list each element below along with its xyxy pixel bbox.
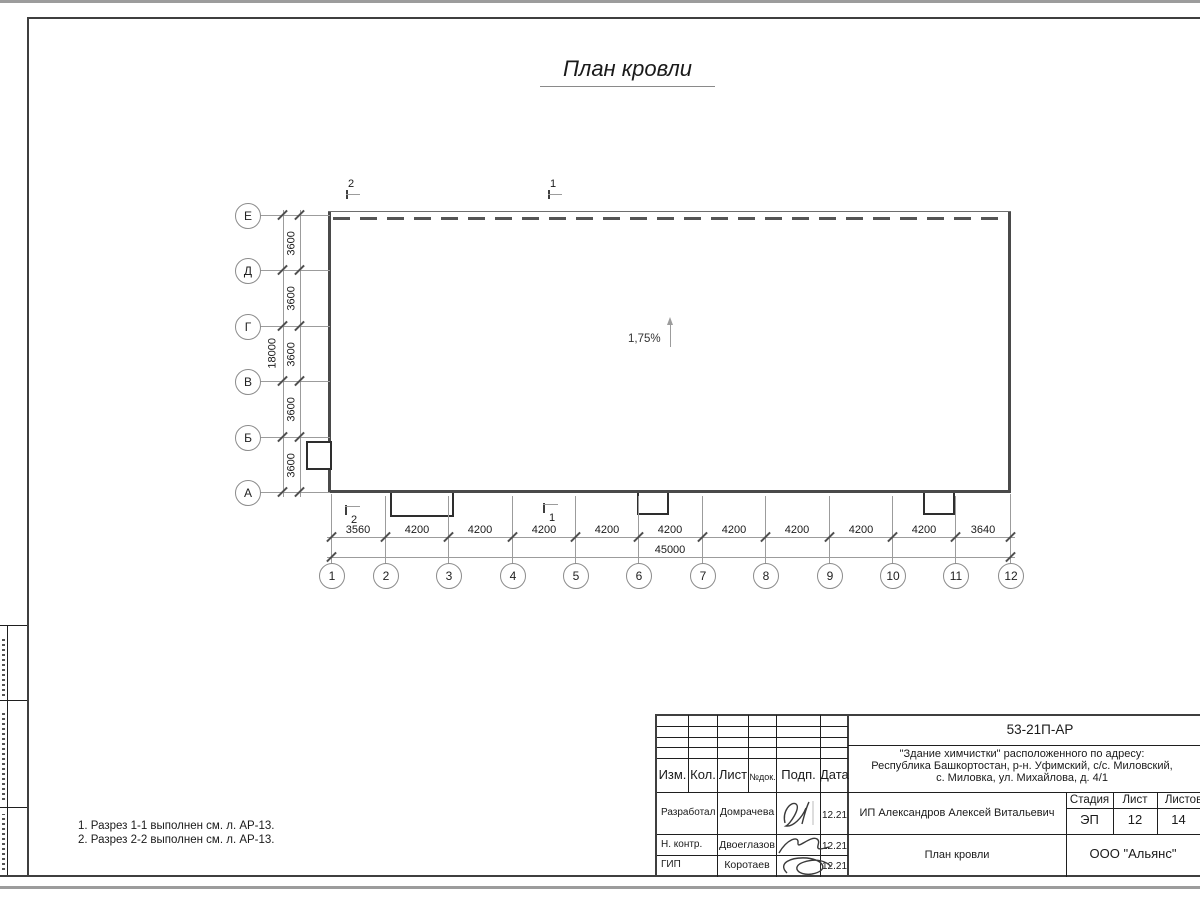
signature <box>775 833 837 877</box>
strip-line <box>0 625 27 626</box>
drawing-sheet: План кровли 1,75% 2 1 2 1 3600 360 <box>0 0 1200 900</box>
titleblock-line <box>1066 808 1200 809</box>
axis-bubble: 11 <box>943 563 969 589</box>
canopy-bottom-1 <box>390 493 454 517</box>
section-mark-line <box>345 506 360 507</box>
wall-right <box>1008 212 1011 493</box>
col-list: Лист <box>717 768 749 783</box>
axis-leader <box>259 215 330 216</box>
axis-label: 4 <box>510 569 517 583</box>
axis-label: 12 <box>1004 569 1017 583</box>
titleblock-line <box>657 792 1200 793</box>
slope-arrow-shaft <box>670 324 671 347</box>
frame-left <box>27 17 29 877</box>
dim-value: 3560 <box>333 524 383 537</box>
dim-value: 4200 <box>582 524 632 537</box>
axis-leader <box>259 381 330 382</box>
axis-bubble: В <box>235 369 261 395</box>
dim-value: 4200 <box>519 524 569 537</box>
dim-total: 45000 <box>645 544 695 557</box>
dim-value: 4200 <box>836 524 886 537</box>
canopy-bottom-2 <box>637 493 669 515</box>
titleblock-line <box>657 834 1200 835</box>
dim-total: 18000 <box>267 331 280 375</box>
doc-number: 53-21П-АР <box>900 722 1180 738</box>
staff-role: Разработал <box>661 807 715 819</box>
axis-label: 9 <box>827 569 834 583</box>
frame-top <box>27 17 1200 19</box>
slope-arrow-head <box>667 317 673 325</box>
dim-value: 4200 <box>899 524 949 537</box>
strip-line <box>0 807 27 808</box>
page-title: План кровли <box>540 56 715 87</box>
object-address-line: с. Миловка, ул. Михайлова, д. 4/1 <box>852 772 1192 785</box>
dim-value: 4200 <box>455 524 505 537</box>
titleblock-line <box>717 715 718 877</box>
col-kol: Кол. <box>688 768 718 783</box>
dim-value: 4200 <box>392 524 442 537</box>
sheets-label: Листов <box>1157 794 1200 807</box>
drawing-name: План кровли <box>852 849 1062 862</box>
stage-value: ЭП <box>1066 813 1113 828</box>
roof-dashed-line <box>333 217 1004 220</box>
sheet-label: Лист <box>1113 794 1157 807</box>
company-name: ООО "Альянс" <box>1068 847 1198 862</box>
titleblock-line <box>657 726 848 727</box>
axis-label: 2 <box>383 569 390 583</box>
axis-leader <box>892 496 893 564</box>
canopy-bottom-3 <box>923 493 955 515</box>
col-izm: Изм. <box>656 768 689 783</box>
section-mark-label: 1 <box>550 178 556 191</box>
axis-label: А <box>244 486 252 500</box>
axis-leader <box>448 496 449 564</box>
object-address-line: Республика Башкортостан, р-н. Уфимский, … <box>852 760 1192 773</box>
dim-line-vertical-segments <box>300 210 301 497</box>
axis-label: В <box>244 375 252 389</box>
axis-leader <box>259 270 330 271</box>
strip-microtext <box>2 638 5 696</box>
slope-label: 1,75% <box>628 333 661 346</box>
dim-value: 3600 <box>286 278 299 318</box>
col-ndok: №док. <box>748 772 777 782</box>
staff-name: Двоеглазов <box>718 839 776 851</box>
staff-name: Домрачева <box>718 806 776 818</box>
staff-name: Коротаев <box>718 859 776 871</box>
strip-microtext <box>2 712 5 800</box>
titleblock-border-top <box>655 714 1200 716</box>
dim-value: 3600 <box>286 334 299 374</box>
sheets-value: 14 <box>1157 813 1200 828</box>
paper-edge-bottom <box>0 886 1200 889</box>
col-podp: Подп. <box>776 768 821 783</box>
axis-bubble: 3 <box>436 563 462 589</box>
axis-bubble: 7 <box>690 563 716 589</box>
dim-value: 3600 <box>286 445 299 485</box>
axis-bubble: 2 <box>373 563 399 589</box>
titleblock-line <box>657 758 848 759</box>
dim-value: 3600 <box>286 223 299 263</box>
axis-bubble: 8 <box>753 563 779 589</box>
frame-bottom <box>0 875 1200 877</box>
dim-line-vertical-total <box>283 210 284 497</box>
axis-bubble: Е <box>235 203 261 229</box>
axis-leader <box>385 496 386 564</box>
axis-label: Г <box>245 320 252 334</box>
titleblock-line <box>657 737 848 738</box>
axis-leader <box>829 496 830 564</box>
section-mark-label: 1 <box>549 512 555 525</box>
roof-edge-top <box>328 211 1011 212</box>
axis-label: 7 <box>700 569 707 583</box>
object-address-line: "Здание химчистки" расположенного по адр… <box>852 748 1192 761</box>
axis-leader <box>512 496 513 564</box>
axis-leader <box>259 492 330 493</box>
axis-label: 3 <box>446 569 453 583</box>
axis-leader <box>638 496 639 564</box>
strip-divider <box>7 625 8 875</box>
paper-edge-top <box>0 0 1200 3</box>
dim-value: 4200 <box>709 524 759 537</box>
axis-label: 5 <box>573 569 580 583</box>
axis-bubble: 12 <box>998 563 1024 589</box>
axis-leader <box>765 496 766 564</box>
titleblock-border-left <box>655 714 657 877</box>
canopy-left <box>306 441 332 470</box>
staff-role: Н. контр. <box>661 839 702 851</box>
section-mark-label: 2 <box>348 178 354 191</box>
titleblock-line <box>847 715 849 877</box>
axis-leader <box>259 437 330 438</box>
axis-bubble: Б <box>235 425 261 451</box>
client-name: ИП Александров Алексей Витальевич <box>852 807 1062 820</box>
note-line: 2. Разрез 2-2 выполнен см. л. АР-13. <box>78 834 275 847</box>
titleblock-line <box>848 745 1200 746</box>
dim-line-horizontal-segments <box>327 537 1015 538</box>
sheet-value: 12 <box>1113 813 1157 828</box>
axis-label: 8 <box>763 569 770 583</box>
axis-label: 6 <box>636 569 643 583</box>
axis-bubble: 9 <box>817 563 843 589</box>
col-data: Дата <box>820 768 848 783</box>
strip-line <box>0 700 27 701</box>
axis-label: Б <box>244 431 252 445</box>
dim-value: 3600 <box>286 389 299 429</box>
axis-bubble: 1 <box>319 563 345 589</box>
axis-label: 1 <box>329 569 336 583</box>
axis-leader <box>259 326 330 327</box>
section-mark-line <box>543 504 558 505</box>
dim-value: 3640 <box>958 524 1008 537</box>
axis-bubble: А <box>235 480 261 506</box>
axis-leader <box>702 496 703 564</box>
axis-bubble: Д <box>235 258 261 284</box>
strip-microtext <box>2 814 5 870</box>
axis-bubble: 6 <box>626 563 652 589</box>
axis-bubble: 5 <box>563 563 589 589</box>
staff-date: 12.21 <box>821 810 848 822</box>
note-line: 1. Разрез 1-1 выполнен см. л. АР-13. <box>78 820 275 833</box>
axis-label: 10 <box>886 569 899 583</box>
axis-label: Д <box>244 264 252 278</box>
axis-leader <box>955 496 956 564</box>
axis-label: 11 <box>950 569 962 583</box>
axis-bubble: 10 <box>880 563 906 589</box>
dim-value: 4200 <box>772 524 822 537</box>
titleblock-line <box>657 747 848 748</box>
axis-label: Е <box>244 209 252 223</box>
staff-role: ГИП <box>661 859 681 871</box>
axis-bubble: Г <box>235 314 261 340</box>
signature <box>779 795 819 833</box>
axis-leader <box>575 496 576 564</box>
dim-value: 4200 <box>645 524 695 537</box>
section-mark-line <box>346 194 360 195</box>
section-mark-line <box>548 194 562 195</box>
stage-label: Стадия <box>1066 794 1113 807</box>
axis-bubble: 4 <box>500 563 526 589</box>
dim-line-horizontal-total <box>327 557 1015 558</box>
